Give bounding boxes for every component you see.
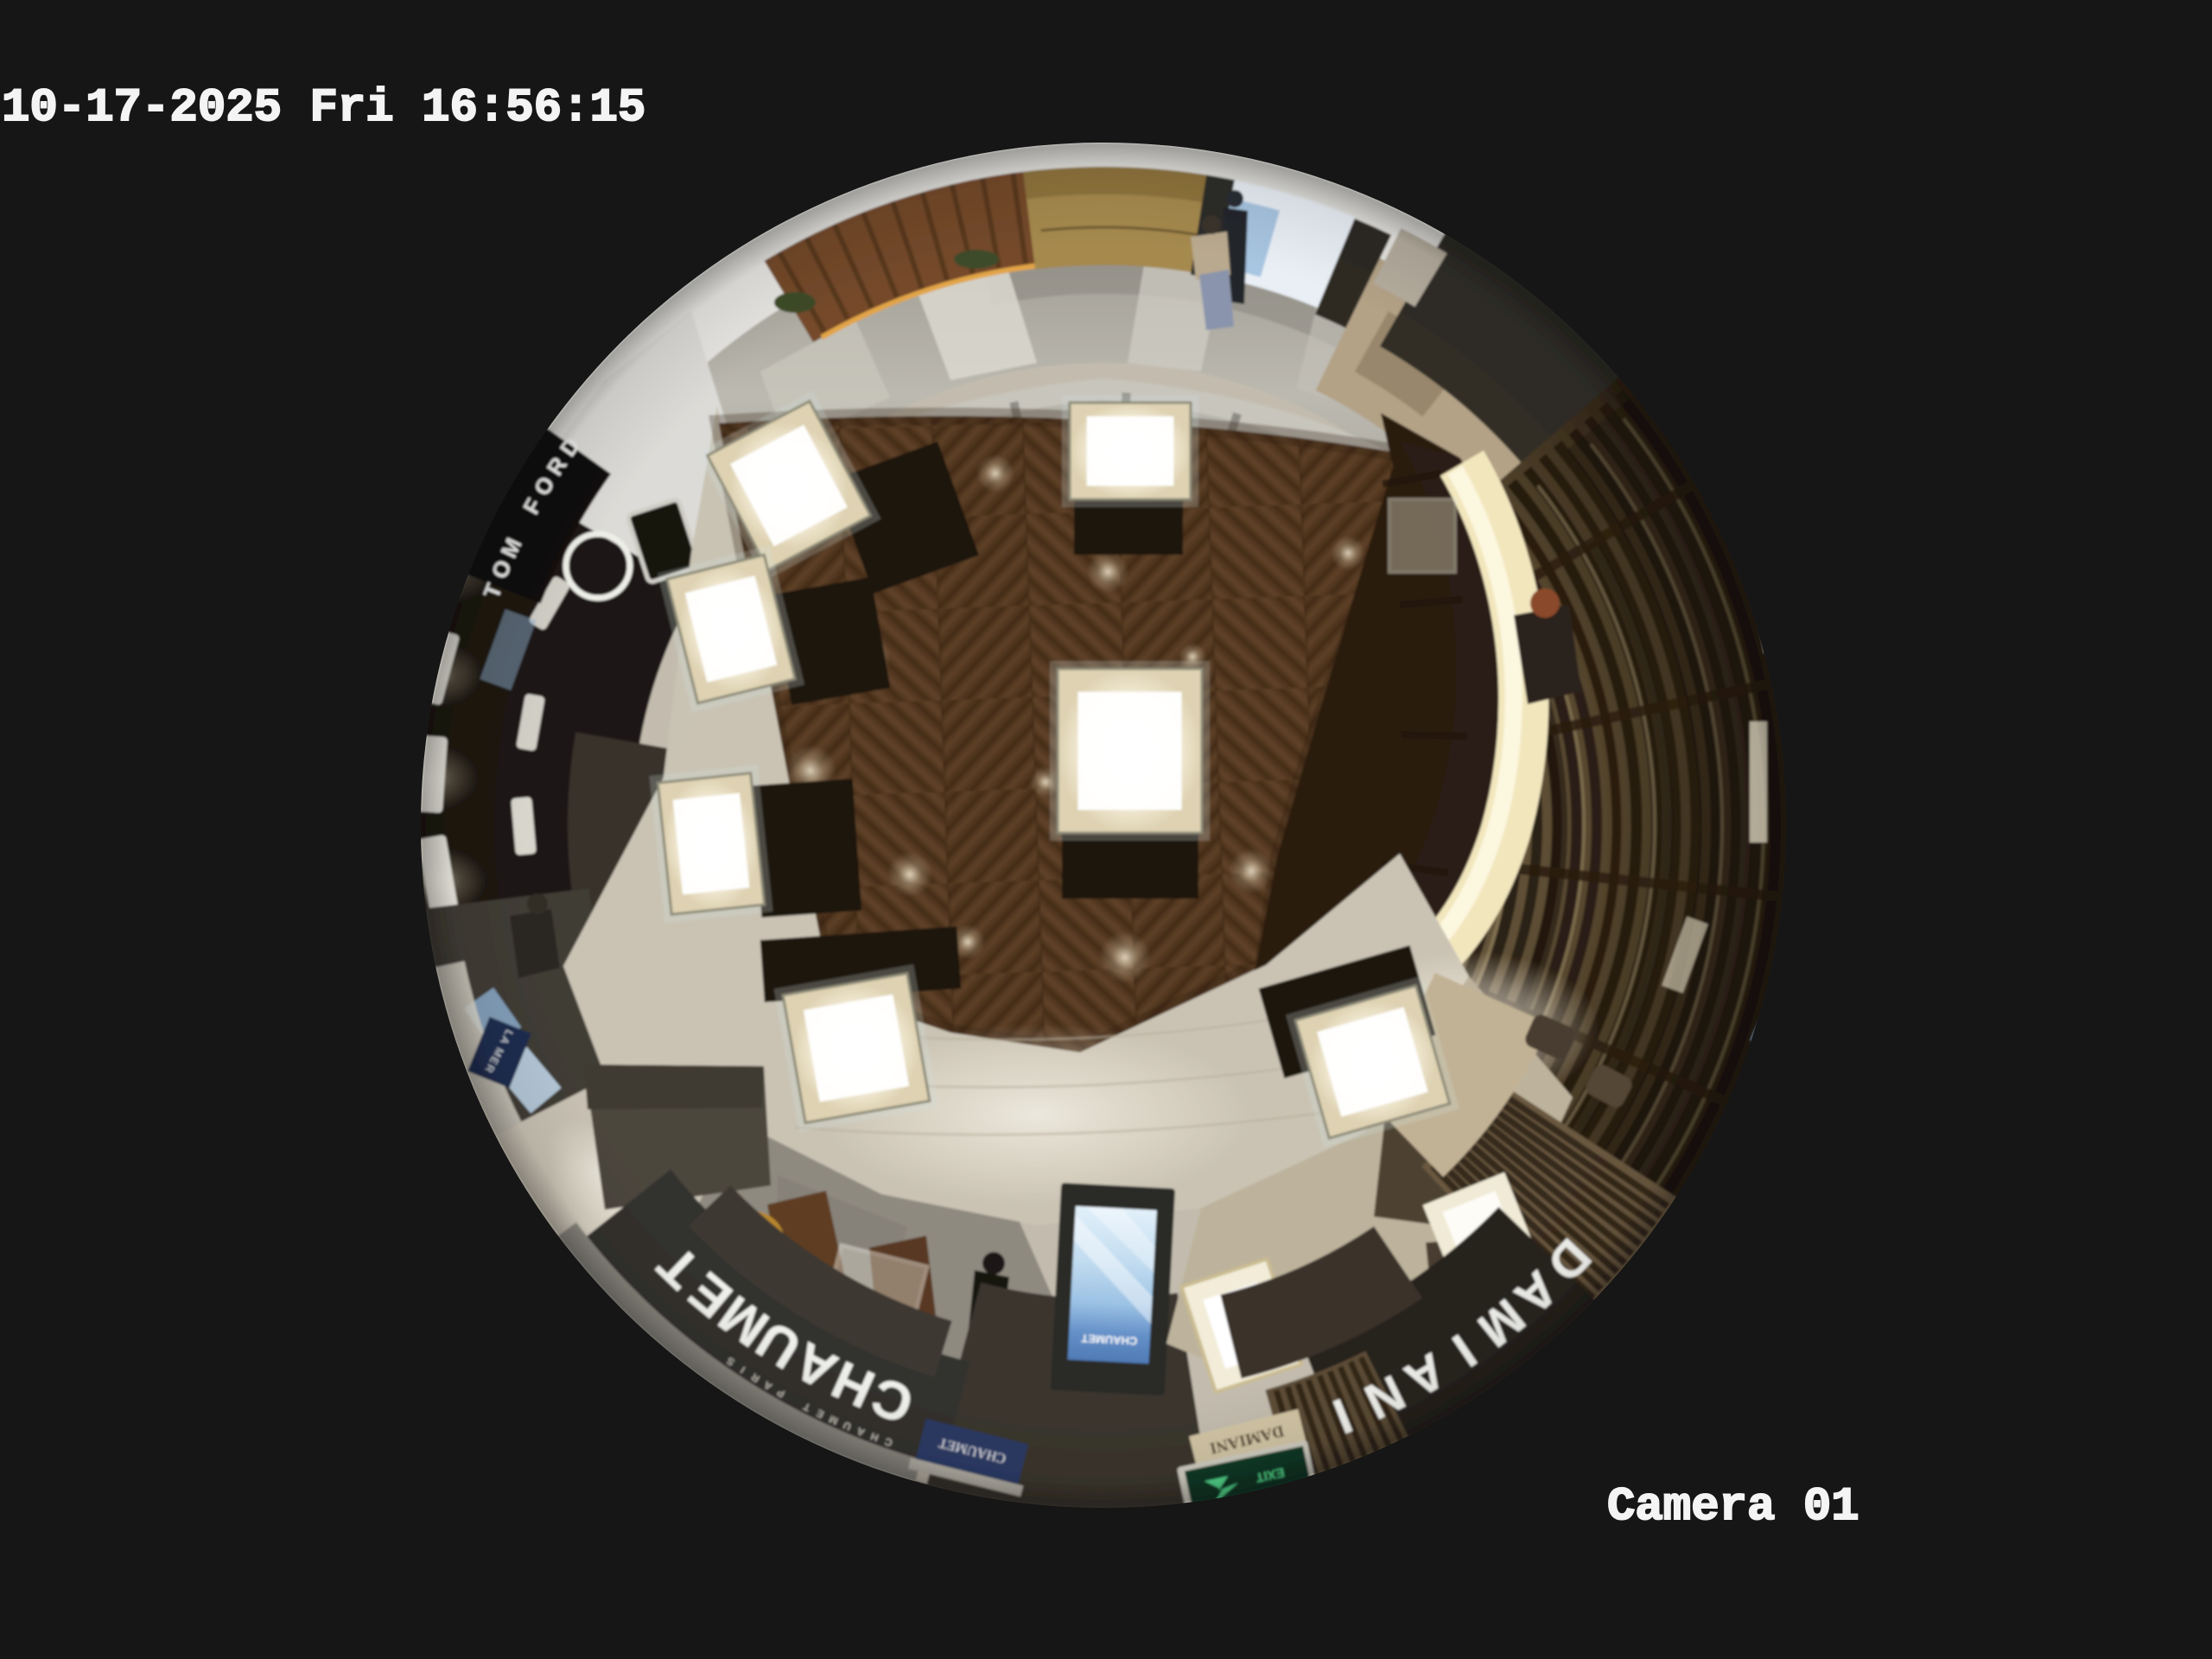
svg-text:10-17-2025 Fri 16:56:15: 10-17-2025 Fri 16:56:15: [2, 82, 645, 135]
svg-text:Camera 01: Camera 01: [1607, 1481, 1859, 1534]
